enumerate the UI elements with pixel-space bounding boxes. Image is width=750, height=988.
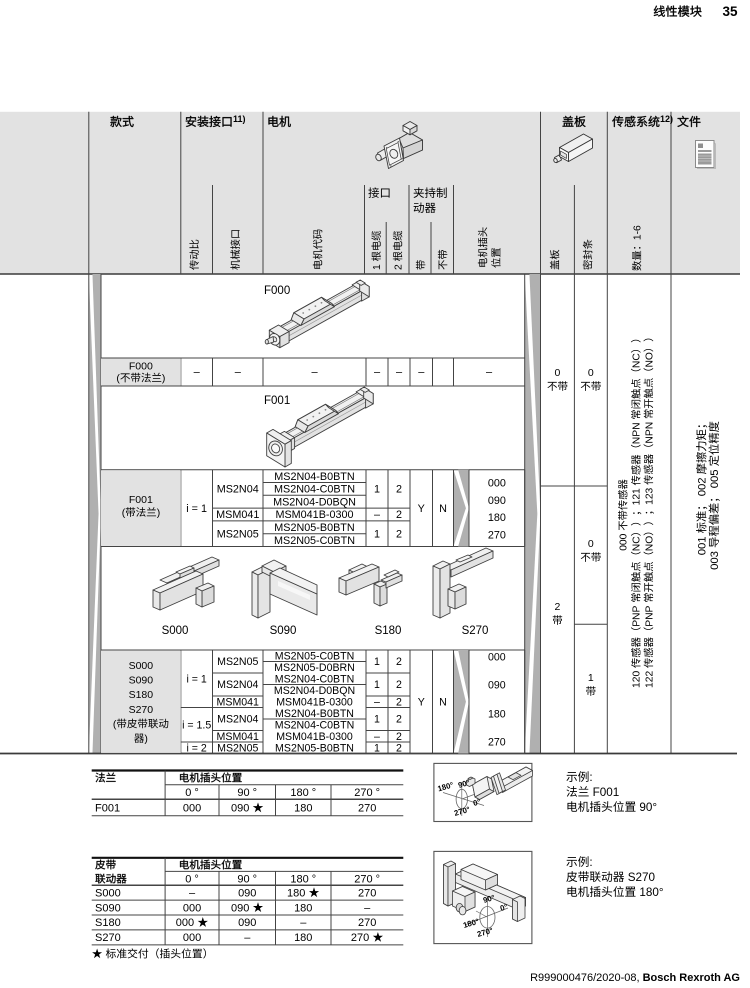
- svg-text:S180: S180: [95, 917, 121, 929]
- svg-text:MS2N05: MS2N05: [217, 656, 258, 668]
- svg-text:180 °: 180 °: [290, 787, 316, 799]
- svg-text:123: 123: [644, 485, 655, 505]
- svg-text:): ): [157, 507, 161, 519]
- svg-text:–: –: [194, 367, 201, 379]
- svg-text:1: 1: [372, 261, 383, 270]
- svg-text:–: –: [374, 731, 380, 743]
- svg-text:–: –: [189, 887, 196, 899]
- svg-text:MS2N05: MS2N05: [217, 528, 259, 540]
- svg-text:270: 270: [358, 917, 376, 929]
- svg-text:2: 2: [396, 656, 402, 668]
- svg-text:NO: NO: [644, 352, 655, 367]
- svg-text:F000: F000: [129, 361, 153, 373]
- svg-text:270 °: 270 °: [354, 787, 380, 799]
- svg-text:S000: S000: [162, 625, 189, 637]
- svg-text:180°: 180°: [636, 886, 663, 899]
- svg-text:180 °: 180 °: [290, 874, 316, 886]
- svg-text:2: 2: [394, 261, 405, 270]
- svg-text:000: 000: [488, 478, 506, 490]
- svg-text:180: 180: [294, 803, 312, 815]
- svg-text:N: N: [439, 503, 447, 515]
- svg-text:1: 1: [374, 528, 380, 540]
- svg-text:–: –: [300, 917, 307, 929]
- svg-text:MSM041: MSM041: [217, 696, 259, 708]
- svg-text:11): 11): [233, 114, 246, 124]
- svg-text:1: 1: [374, 484, 380, 496]
- svg-text:270 °: 270 °: [354, 874, 380, 886]
- svg-text:S180: S180: [129, 689, 154, 701]
- svg-text:2: 2: [396, 731, 402, 743]
- svg-text:090: 090: [238, 887, 256, 899]
- svg-text:0 °: 0 °: [185, 787, 199, 799]
- svg-text:180: 180: [488, 512, 506, 524]
- svg-text:S270: S270: [462, 625, 489, 637]
- svg-text:MS2N05-D0BRN: MS2N05-D0BRN: [274, 662, 355, 674]
- svg-text:000: 000: [183, 932, 201, 944]
- svg-text:–: –: [418, 367, 425, 379]
- svg-text:2: 2: [396, 528, 402, 540]
- svg-text:270: 270: [358, 803, 376, 815]
- svg-text:F001: F001: [129, 494, 153, 506]
- svg-text:0: 0: [588, 538, 594, 550]
- svg-text:1: 1: [374, 679, 380, 691]
- svg-text:180: 180: [287, 887, 308, 899]
- svg-text:0: 0: [555, 367, 561, 379]
- svg-text:PNP: PNP: [632, 603, 643, 627]
- svg-text:MSM041B-0300: MSM041B-0300: [276, 731, 353, 743]
- svg-text:MSM041: MSM041: [217, 731, 259, 743]
- svg-text:i = 1: i = 1: [186, 673, 206, 685]
- svg-text:90 °: 90 °: [237, 874, 257, 886]
- svg-text:0: 0: [588, 367, 594, 379]
- svg-text:–: –: [374, 509, 380, 521]
- svg-text:MS2N04-B0BTN: MS2N04-B0BTN: [274, 471, 354, 483]
- svg-text:R999000476/2020-08, Bosch Rexr: R999000476/2020-08, Bosch Rexroth AG: [530, 972, 740, 984]
- svg-text:121: 121: [632, 485, 643, 505]
- svg-text:F001: F001: [589, 786, 619, 799]
- svg-text:180: 180: [294, 902, 312, 914]
- svg-text:005: 005: [709, 466, 721, 491]
- svg-text:2: 2: [396, 714, 402, 726]
- svg-text:MS2N05: MS2N05: [217, 742, 258, 754]
- svg-text::: :: [589, 771, 592, 784]
- svg-text:270: 270: [358, 887, 376, 899]
- svg-text:180: 180: [294, 932, 312, 944]
- svg-text:003: 003: [709, 548, 721, 570]
- svg-text:090: 090: [238, 917, 256, 929]
- svg-text:000: 000: [176, 917, 197, 929]
- svg-text:2: 2: [396, 696, 402, 708]
- svg-text:MS2N04-D0BQN: MS2N04-D0BQN: [274, 685, 355, 697]
- svg-text:–: –: [374, 696, 380, 708]
- svg-text:MS2N04-B0BTN: MS2N04-B0BTN: [275, 708, 354, 720]
- svg-text:N: N: [439, 696, 447, 708]
- svg-text:–: –: [486, 367, 493, 379]
- svg-text:NC: NC: [632, 353, 643, 368]
- svg-text:000: 000: [183, 803, 201, 815]
- svg-text:i = 1.5: i = 1.5: [182, 719, 211, 731]
- svg-text:090: 090: [488, 679, 506, 691]
- svg-text:i = 1: i = 1: [186, 503, 207, 515]
- svg-text:–: –: [374, 367, 381, 379]
- svg-text:MSM041: MSM041: [216, 509, 259, 521]
- svg-text:(: (: [116, 373, 120, 385]
- svg-text:MS2N04-C0BTN: MS2N04-C0BTN: [275, 719, 354, 731]
- svg-text:i = 2: i = 2: [186, 742, 206, 754]
- svg-text:(: (: [113, 718, 117, 730]
- svg-text:MS2N04: MS2N04: [217, 679, 258, 691]
- svg-text:1: 1: [374, 742, 380, 754]
- svg-text:000: 000: [619, 531, 630, 551]
- svg-text:001: 001: [697, 533, 709, 555]
- svg-text:S090: S090: [129, 675, 154, 687]
- svg-text:S090: S090: [270, 625, 297, 637]
- svg-text:2: 2: [396, 509, 402, 521]
- svg-text:090: 090: [231, 902, 252, 914]
- svg-text:F001: F001: [95, 803, 120, 815]
- svg-text:MSM041B-0300: MSM041B-0300: [276, 696, 353, 708]
- svg-text:90 °: 90 °: [237, 787, 257, 799]
- svg-text:–: –: [364, 902, 371, 914]
- svg-text:1: 1: [588, 672, 594, 684]
- svg-text:–: –: [244, 932, 251, 944]
- svg-text:MS2N04-C0BTN: MS2N04-C0BTN: [274, 484, 355, 496]
- svg-text::: :: [589, 856, 592, 869]
- svg-text:2: 2: [396, 484, 402, 496]
- svg-text:): ): [162, 373, 166, 385]
- svg-text:122: 122: [644, 668, 655, 688]
- svg-text:NC: NC: [632, 536, 643, 551]
- svg-text:MS2N05-B0BTN: MS2N05-B0BTN: [274, 522, 354, 534]
- svg-text:000: 000: [183, 902, 201, 914]
- svg-text:Y: Y: [418, 696, 425, 708]
- svg-text:S270: S270: [625, 871, 656, 884]
- svg-text:NPN: NPN: [632, 420, 643, 445]
- svg-text:090: 090: [231, 803, 252, 815]
- svg-text:F001: F001: [264, 395, 290, 407]
- svg-text:35: 35: [722, 4, 738, 19]
- svg-text:MS2N05-C0BTN: MS2N05-C0BTN: [275, 650, 354, 662]
- svg-text:180: 180: [488, 709, 506, 721]
- svg-text:1: 1: [374, 714, 380, 726]
- svg-text:000: 000: [488, 652, 506, 664]
- svg-text:270: 270: [488, 529, 506, 541]
- svg-text:(: (: [122, 507, 126, 519]
- svg-text:MS2N05-B0BTN: MS2N05-B0BTN: [275, 742, 354, 754]
- svg-text:PNP: PNP: [644, 603, 655, 627]
- svg-text:Y: Y: [418, 503, 425, 515]
- svg-text:270: 270: [351, 932, 372, 944]
- svg-text:S000: S000: [95, 887, 121, 899]
- svg-text:S270: S270: [129, 704, 154, 716]
- svg-text:120: 120: [632, 668, 643, 688]
- svg-text:1: 1: [374, 656, 380, 668]
- svg-text:–: –: [311, 367, 318, 379]
- svg-text:): ): [144, 733, 148, 745]
- svg-text:NO: NO: [644, 536, 655, 551]
- svg-text:270: 270: [488, 737, 506, 749]
- svg-text:2: 2: [396, 679, 402, 691]
- svg-text:12): 12): [660, 114, 673, 124]
- svg-text:S000: S000: [129, 660, 154, 672]
- svg-text:–: –: [235, 367, 242, 379]
- svg-text:S270: S270: [95, 932, 121, 944]
- svg-text:MS2N04: MS2N04: [217, 714, 258, 726]
- svg-text:0 °: 0 °: [185, 874, 199, 886]
- svg-text:S090: S090: [95, 902, 121, 914]
- svg-text:MSM041B-0300: MSM041B-0300: [275, 509, 353, 521]
- svg-text:2: 2: [396, 742, 402, 754]
- svg-text:MS2N05-C0BTN: MS2N05-C0BTN: [274, 535, 355, 547]
- svg-text:2: 2: [555, 601, 561, 613]
- svg-text:090: 090: [488, 495, 506, 507]
- svg-text:MS2N04: MS2N04: [217, 484, 259, 496]
- svg-text:002: 002: [697, 474, 709, 499]
- svg-text:1-6: 1-6: [633, 225, 644, 240]
- svg-text:S180: S180: [375, 625, 402, 637]
- svg-text:MS2N04-C0BTN: MS2N04-C0BTN: [275, 673, 354, 685]
- svg-text:F000: F000: [264, 285, 290, 297]
- svg-text:90°: 90°: [636, 801, 657, 814]
- svg-text:MS2N04-D0BQN: MS2N04-D0BQN: [273, 496, 356, 508]
- svg-text:–: –: [396, 367, 403, 379]
- svg-text:NPN: NPN: [644, 419, 655, 444]
